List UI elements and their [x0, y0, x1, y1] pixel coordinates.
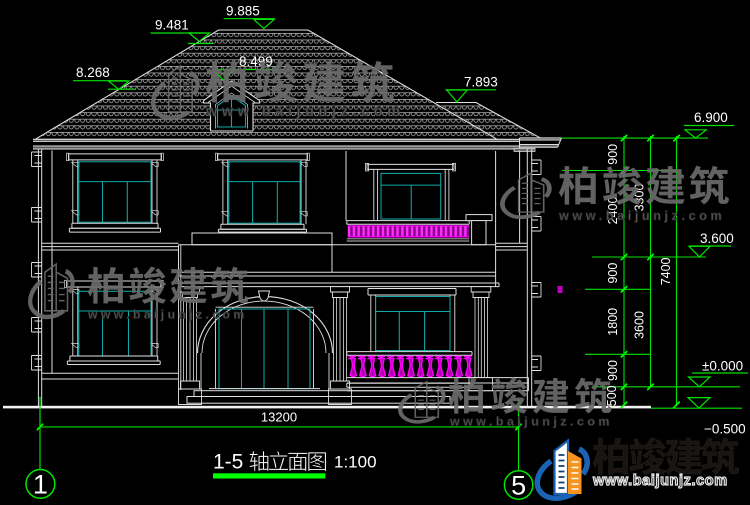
svg-text:9.885: 9.885 — [226, 4, 260, 19]
svg-text:±0.000: ±0.000 — [702, 359, 743, 374]
svg-text:www.baijunjz.com: www.baijunjz.com — [87, 308, 248, 322]
svg-text:www.baijunjz.com: www.baijunjz.com — [592, 473, 728, 489]
svg-text:1: 1 — [33, 470, 48, 500]
svg-text:1800: 1800 — [606, 308, 620, 336]
svg-text:5: 5 — [511, 471, 526, 501]
svg-text:9.481: 9.481 — [155, 18, 189, 33]
svg-text:500: 500 — [605, 385, 619, 406]
svg-text:7400: 7400 — [659, 257, 673, 285]
svg-text:www.baijunjz.com: www.baijunjz.com — [449, 415, 613, 429]
svg-text:www.baijunjz.com: www.baijunjz.com — [558, 209, 725, 223]
svg-text:1:100: 1:100 — [334, 453, 377, 472]
svg-text:13200: 13200 — [261, 410, 297, 425]
svg-text:900: 900 — [606, 360, 620, 381]
svg-text:8.499: 8.499 — [239, 54, 273, 69]
svg-text:7.893: 7.893 — [464, 75, 498, 90]
svg-text:3600: 3600 — [632, 311, 646, 339]
svg-text:−0.500: −0.500 — [704, 422, 746, 437]
svg-text:900: 900 — [606, 263, 620, 284]
svg-text:8.268: 8.268 — [76, 65, 110, 80]
svg-text:1-5: 1-5 — [213, 451, 243, 474]
svg-text:www.baijunjz.com: www.baijunjz.com — [205, 104, 405, 120]
svg-text:3.600: 3.600 — [700, 231, 734, 246]
svg-text:6.900: 6.900 — [694, 110, 728, 125]
svg-text:900: 900 — [606, 144, 620, 165]
